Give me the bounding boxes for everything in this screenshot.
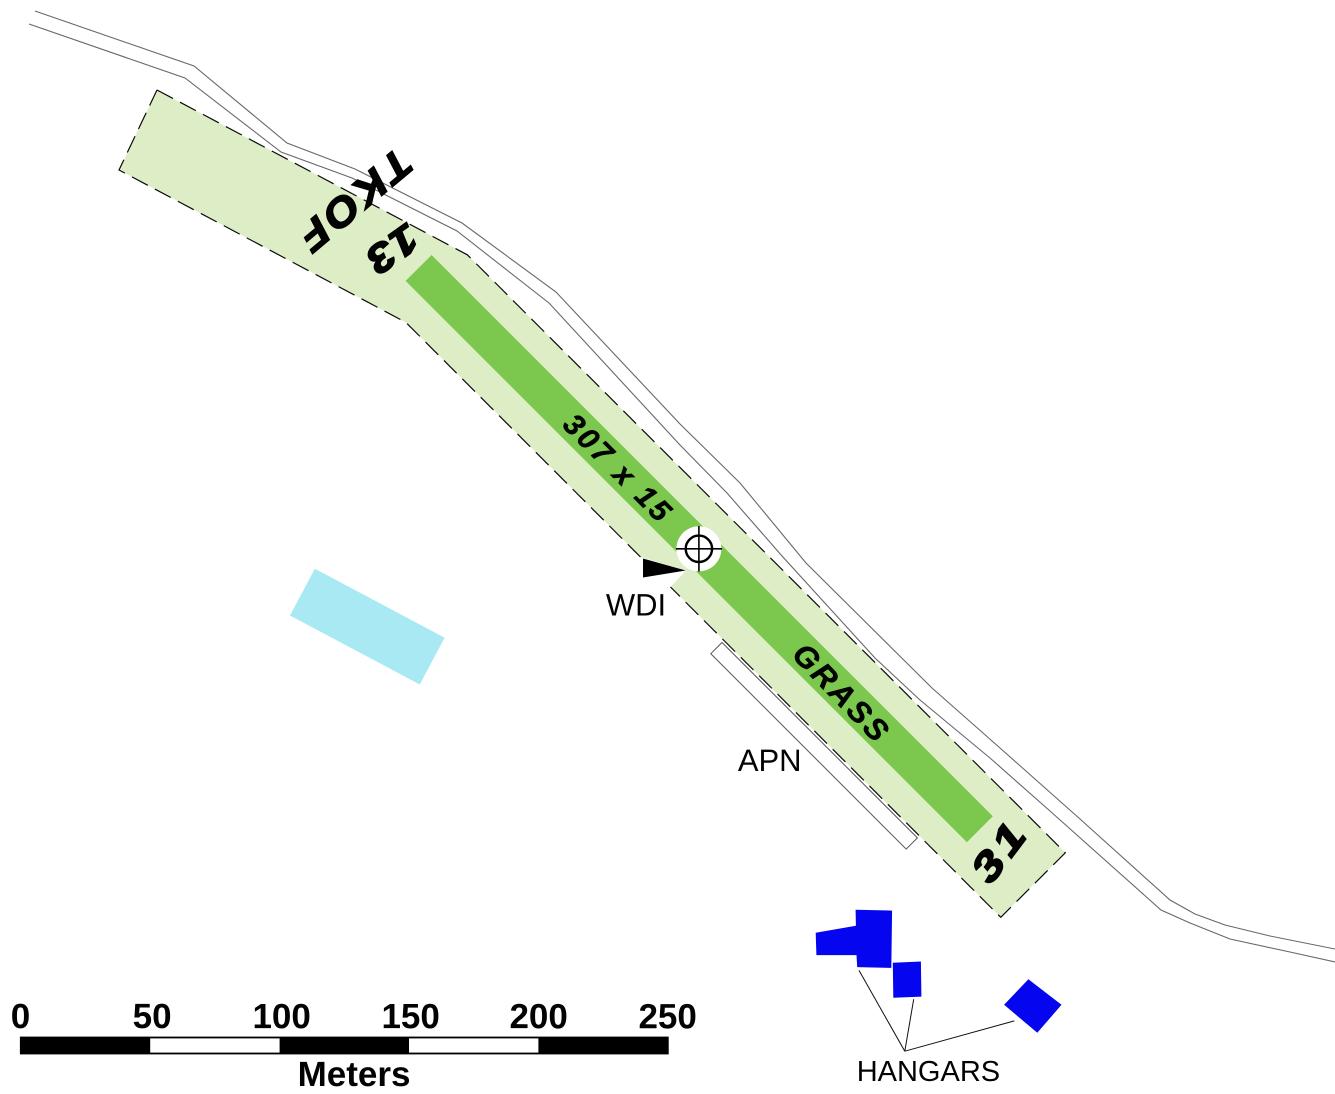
svg-text:200: 200	[509, 997, 567, 1036]
svg-text:HANGARS: HANGARS	[857, 1056, 1000, 1088]
svg-text:100: 100	[252, 997, 310, 1036]
svg-text:0: 0	[11, 997, 30, 1036]
svg-text:WDI: WDI	[606, 587, 666, 622]
svg-text:APN: APN	[738, 743, 802, 778]
svg-text:250: 250	[638, 997, 696, 1036]
svg-text:Meters: Meters	[298, 1055, 411, 1094]
svg-text:150: 150	[381, 997, 439, 1036]
svg-text:50: 50	[133, 997, 172, 1036]
